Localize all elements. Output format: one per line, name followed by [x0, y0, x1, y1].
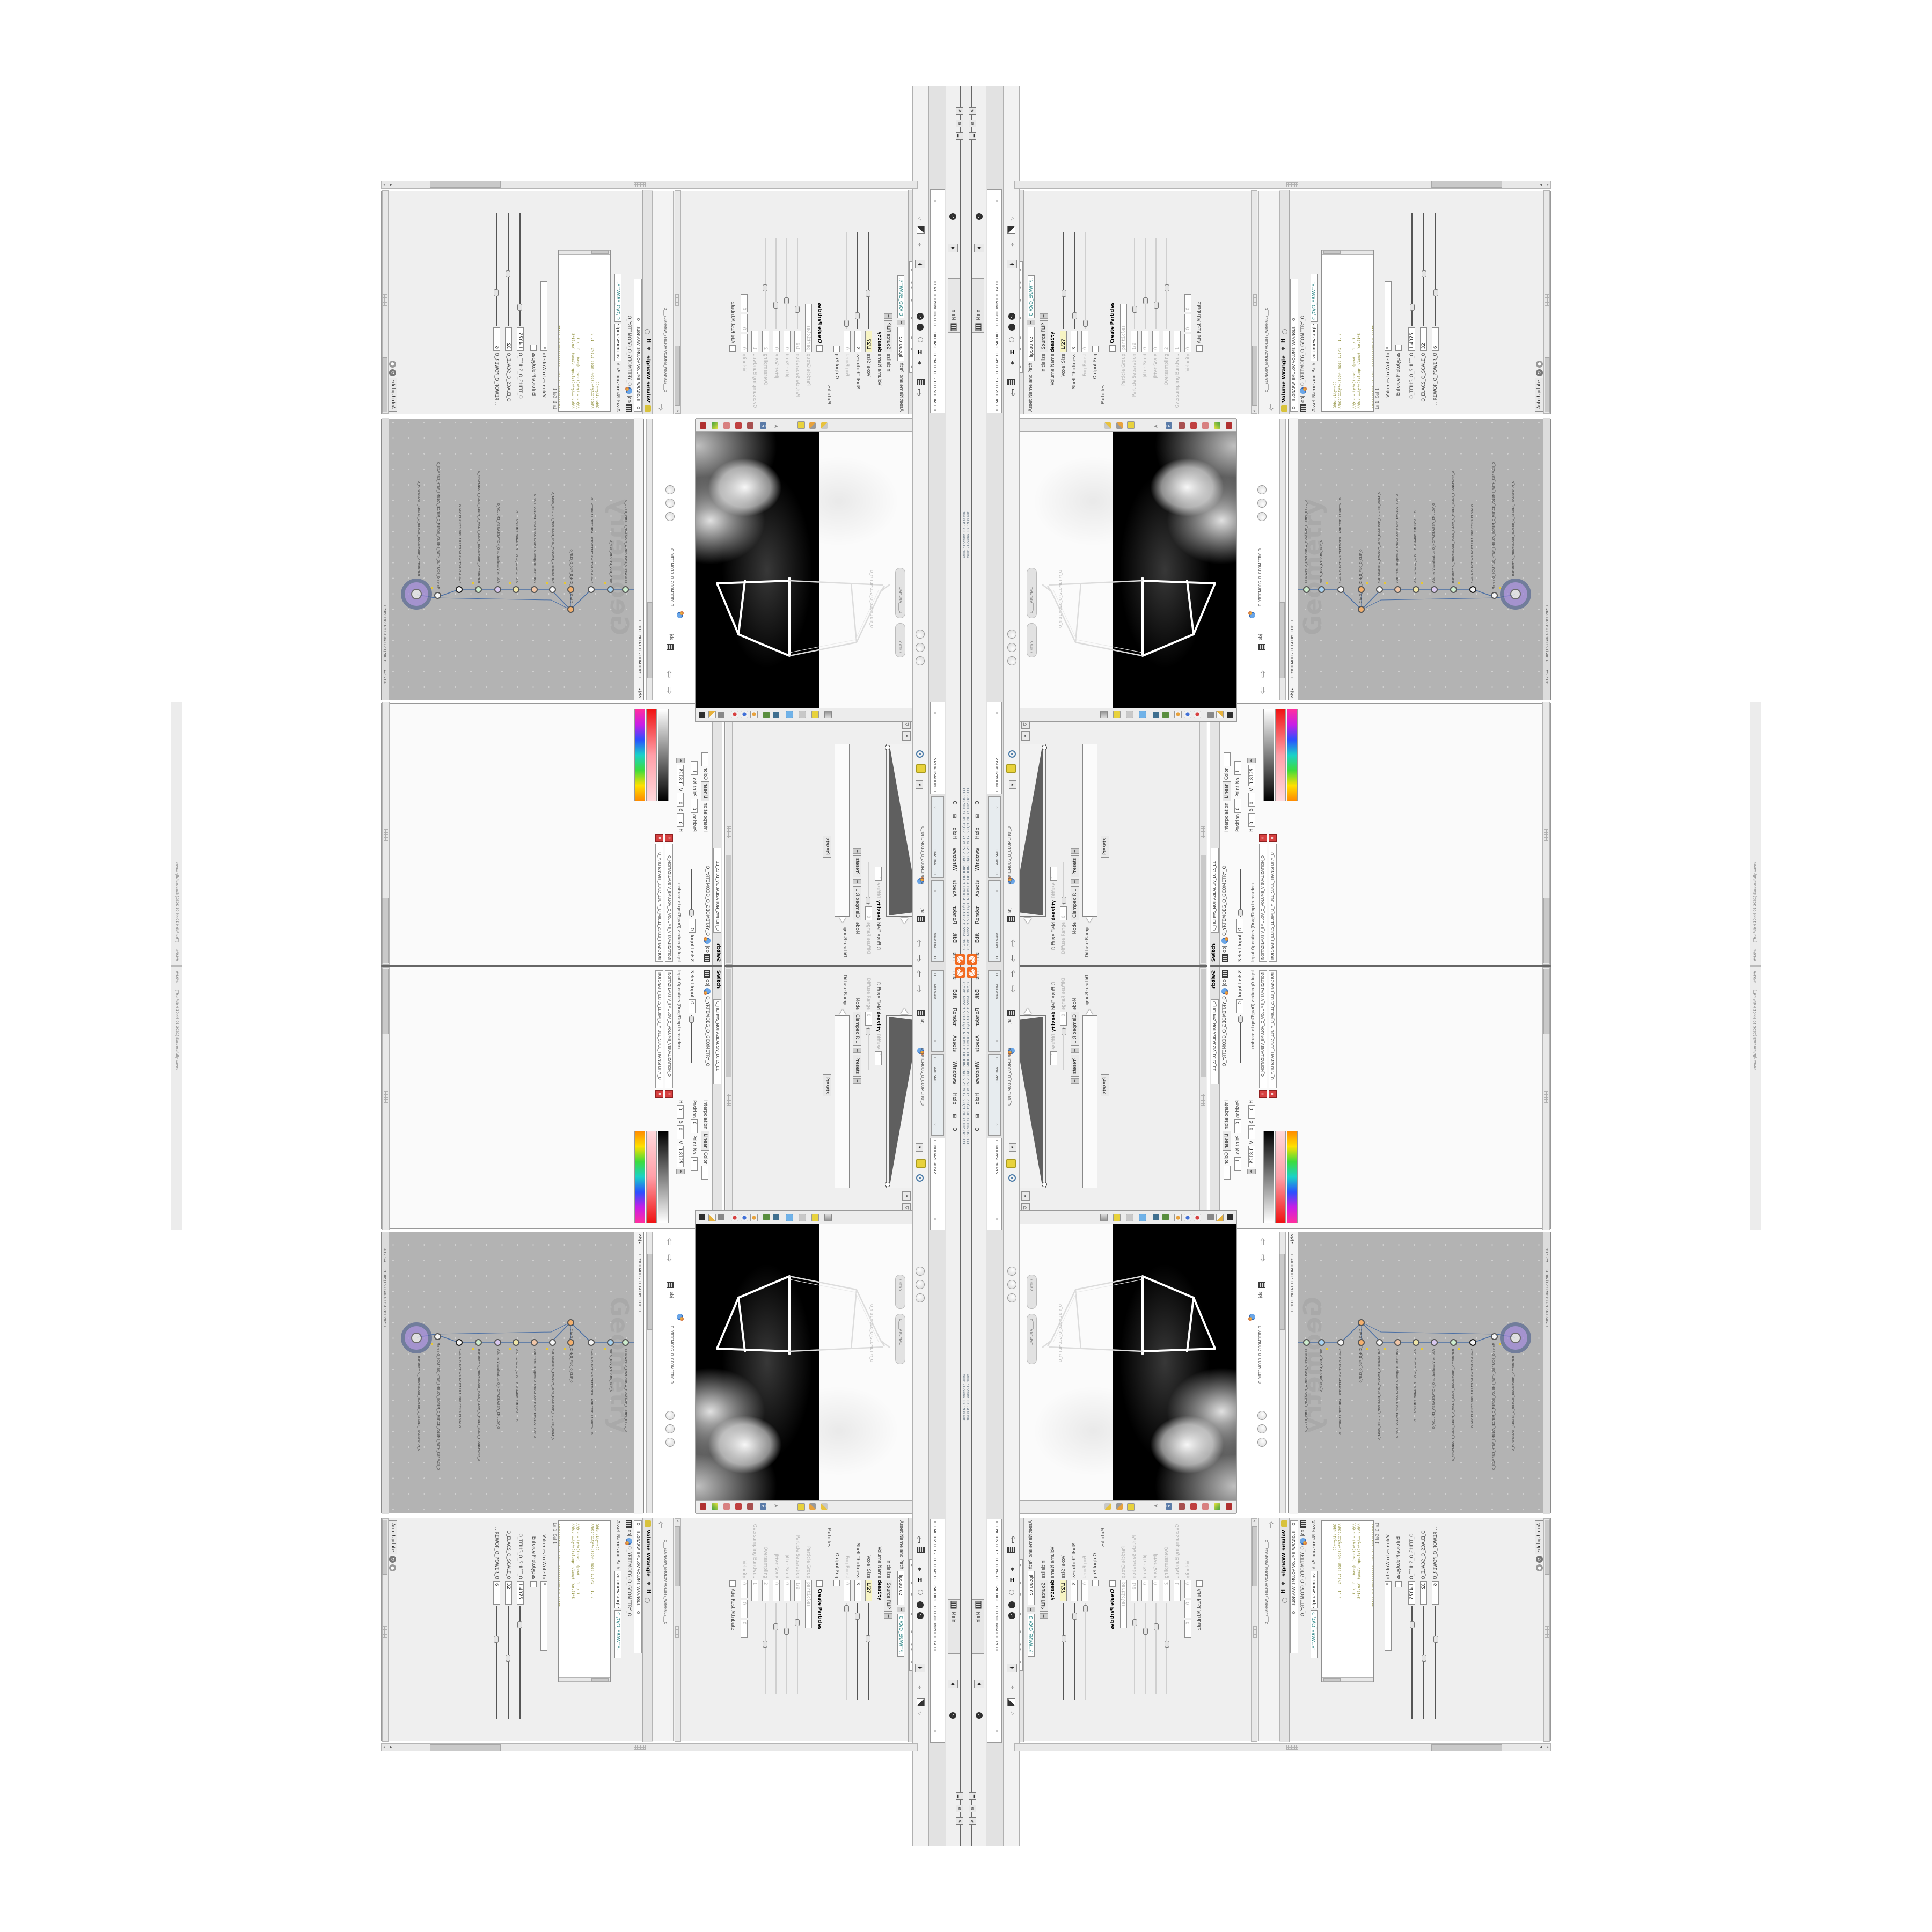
network-node[interactable]	[475, 586, 482, 593]
shell-thickness-slider[interactable]	[1074, 232, 1075, 329]
bottom-hscrollbar[interactable]: ◂ ▸	[381, 1743, 918, 1751]
gutter-path-label[interactable]: O_YRTEMOEG_O_GEOMETRY_O	[670, 1326, 674, 1384]
info-icon[interactable]: i	[1008, 324, 1015, 331]
camera-pill[interactable]: O____AREMAC	[895, 1314, 905, 1364]
breadcrumb-obj[interactable]: obj	[626, 396, 632, 402]
presets-spinner[interactable]: ◂▸	[853, 848, 861, 854]
particle-group-field[interactable]: particles	[805, 1580, 812, 1628]
pane-tab-volvis[interactable]: O_NOITAZILAUSIV...✕	[987, 1138, 1002, 1230]
velocity-z-field[interactable]: 0	[1184, 294, 1191, 312]
gear-icon[interactable]: ✱	[646, 347, 651, 350]
create-particles-checkbox[interactable]	[1109, 1580, 1116, 1587]
ramp-redpink[interactable]	[1275, 709, 1286, 801]
diffuse-ramp-widget[interactable]	[835, 1015, 850, 1188]
asset-spinner[interactable]: ◂▸	[1027, 1607, 1035, 1612]
select-input-field[interactable]: 0	[689, 919, 696, 933]
viewport-tool-icon[interactable]	[723, 1503, 730, 1510]
power-field[interactable]: 6	[1432, 327, 1439, 351]
viewport-tool-icon[interactable]	[1139, 711, 1146, 718]
network-node[interactable]	[494, 1339, 501, 1346]
switch-breadcrumb[interactable]: obj O_YRTEMOEG_O_GEOMETRY_O	[1221, 866, 1228, 962]
pane-up-arrow-icon[interactable]: ⇧	[1268, 401, 1275, 412]
search-icon[interactable]	[645, 329, 650, 334]
network-node[interactable]	[1337, 1339, 1344, 1346]
network-node[interactable]	[513, 586, 519, 593]
asset-node-field[interactable]: flipsource	[1028, 1571, 1035, 1605]
menu-assets[interactable]: Assets	[975, 880, 980, 897]
network-node[interactable]	[1358, 1319, 1365, 1326]
interpolation-select[interactable]: Linear	[1223, 1131, 1231, 1150]
camera-pill[interactable]: O____AREMAC	[1027, 1314, 1037, 1364]
wrangle-scrollbar[interactable]	[1543, 1518, 1550, 1742]
switch-breadcrumb[interactable]: obj O_YRTEMOEG_O_GEOMETRY_O	[704, 970, 711, 1066]
viewport-tool-icon[interactable]	[1194, 1214, 1201, 1221]
select-input-slider[interactable]	[1240, 1015, 1241, 1063]
voxel-size-slider[interactable]	[1063, 1603, 1064, 1700]
pane-down-arrow-icon[interactable]: ⇩	[1259, 668, 1267, 679]
particle-separation-slider[interactable]	[797, 1603, 799, 1694]
jitter-seed-slider[interactable]	[1145, 238, 1146, 329]
remove-input-2-button[interactable]: ×	[655, 834, 663, 842]
interpolation-select[interactable]: Linear	[701, 1131, 709, 1150]
diffuse-ramp-handle[interactable]	[839, 917, 846, 923]
menu-edit[interactable]: Edit	[975, 933, 980, 943]
oversampling-bandwidth-field[interactable]: 1	[1174, 1580, 1181, 1601]
pane-up-arrow-icon[interactable]: ⇧	[1009, 969, 1017, 980]
voxel-size-slider[interactable]	[868, 232, 869, 329]
view-tool-icon[interactable]	[665, 1424, 675, 1433]
viewport-tool-icon[interactable]	[712, 422, 718, 429]
viewport-tool-icon[interactable]	[1126, 1214, 1133, 1221]
display-toggle-icon[interactable]	[917, 226, 925, 234]
jitter-seed-slider[interactable]	[1145, 1603, 1146, 1694]
viewport-tool-icon[interactable]	[741, 711, 748, 718]
particle-separation-slider[interactable]	[1134, 238, 1135, 329]
network-node[interactable]	[1376, 1339, 1383, 1346]
menu-spin-button[interactable]: ◂▸	[974, 1680, 984, 1688]
menu-help[interactable]: Help	[952, 828, 957, 839]
voxel-size-slider[interactable]	[868, 1603, 869, 1700]
shift-field[interactable]: 1.4375	[517, 327, 524, 351]
flip-scrollbar[interactable]: ◂	[1251, 190, 1257, 414]
gear-icon[interactable]: ✱	[646, 1582, 651, 1585]
network-node[interactable]	[1469, 1339, 1476, 1346]
ramp-redpink[interactable]	[646, 709, 657, 801]
shift-slider[interactable]	[1411, 1606, 1413, 1719]
display-toggle-icon[interactable]	[917, 1698, 925, 1706]
desktop-grid-icon[interactable]: ⊞	[952, 1114, 957, 1118]
h-field[interactable]: 0	[1248, 1105, 1255, 1119]
viewport-tool-icon[interactable]	[1226, 422, 1232, 429]
volvis-scrollbar[interactable]	[726, 702, 733, 965]
oversampling-bandwidth-field[interactable]: 1	[751, 331, 758, 352]
plus-icon[interactable]: ✛	[1011, 241, 1014, 247]
voxel-size-slider[interactable]	[1063, 232, 1064, 329]
v-spinner[interactable]: ◂▸	[1247, 1169, 1256, 1174]
viewport-tool-icon[interactable]	[1174, 711, 1182, 718]
pane-tab-camera[interactable]: O____AREMAC...✕	[988, 796, 1001, 878]
select-input-field[interactable]: 0	[689, 999, 696, 1013]
menu-render[interactable]: Render	[975, 906, 980, 924]
plus-icon[interactable]: ✛	[1011, 1685, 1014, 1690]
gutter-obj-label[interactable]: obj	[669, 1292, 674, 1298]
viewport-tool-icon[interactable]	[747, 1503, 753, 1510]
sticky-note-icon[interactable]	[916, 764, 926, 773]
side-collapse-button[interactable]: ◂	[916, 1143, 923, 1152]
remove-input-1-button[interactable]: ×	[1259, 1090, 1267, 1098]
asset-path-field[interactable]: C:/O/O_ERAWTF...	[1311, 1610, 1318, 1658]
diffuse-presets-button[interactable]: Presets	[823, 836, 831, 858]
h-field[interactable]: 0	[677, 1105, 684, 1119]
viewport-tool-icon[interactable]: 7D	[1166, 1503, 1172, 1510]
create-particles-checkbox[interactable]	[1109, 345, 1116, 352]
shift-slider[interactable]	[1411, 213, 1413, 326]
pane-down-arrow-icon[interactable]: ⇩	[665, 1253, 673, 1264]
power-field[interactable]: 6	[493, 327, 500, 351]
ramp-redpink[interactable]	[646, 1131, 657, 1223]
mode2-select[interactable]: Clamped R...	[853, 1012, 861, 1046]
gutter-path-label[interactable]: O_YRTEMOEG_O_GEOMETRY_O	[1258, 548, 1262, 606]
breadcrumb-path[interactable]: O_YRTEMOEG_O_GEOMETRY_O	[1222, 996, 1227, 1066]
side-obj-label[interactable]: obj	[1007, 1019, 1012, 1024]
search-icon[interactable]	[1282, 1598, 1287, 1603]
menu-assets[interactable]: Assets	[952, 1035, 957, 1052]
pane-up-arrow-icon[interactable]: ⇧	[915, 952, 923, 963]
switch-tab[interactable]: O_HCTIWS_NOITAZILAUSIV_ECILS_EL	[713, 999, 721, 1084]
pane-down-arrow-icon[interactable]: ⇩	[1009, 984, 1017, 995]
pane-tab-volvis[interactable]: O_NOITAZILAUSIV...✕	[930, 1138, 945, 1230]
viewport-tool-icon[interactable]	[1184, 711, 1191, 718]
viewport-tool-icon[interactable]	[1162, 1214, 1169, 1220]
volumes-field[interactable]: *	[1385, 281, 1392, 351]
menu-assets[interactable]: Assets	[952, 880, 957, 897]
network-node[interactable]	[456, 586, 463, 593]
diffuse-range-field[interactable]: 0	[1060, 906, 1067, 920]
initialize-spinner[interactable]: ◂▸	[1040, 1613, 1048, 1619]
initialize-spinner[interactable]: ◂▸	[884, 313, 892, 319]
side-obj-label[interactable]: obj	[1007, 908, 1012, 913]
wrangle-breadcrumb[interactable]: obj O_YRTEMOEG_O_GEOMETRY_O	[626, 1520, 632, 1616]
viewport-tool-icon[interactable]	[1226, 1503, 1232, 1510]
pane-up-arrow-icon[interactable]: ⇧	[1259, 1237, 1267, 1248]
network-node[interactable]	[1413, 586, 1419, 593]
ramp-handle-end[interactable]	[1042, 1182, 1047, 1187]
pane-down-arrow-icon[interactable]: ⇩	[1009, 937, 1017, 948]
interpolation-select[interactable]: Linear	[1223, 781, 1231, 801]
view-icon[interactable]	[1007, 643, 1016, 652]
plus-icon[interactable]: ✛	[918, 1685, 921, 1690]
help-icon[interactable]: ?	[949, 213, 956, 220]
side-path-label[interactable]: O_YRTEMOEG_O_GEOMETRY_O	[1007, 1048, 1012, 1106]
view-tool-icon[interactable]	[1257, 1438, 1267, 1447]
fog-boost-slider[interactable]	[847, 1603, 848, 1700]
viewport-tool-icon[interactable]	[1184, 1214, 1191, 1221]
viewport-tool-icon[interactable]	[1127, 421, 1135, 429]
menu-windows[interactable]: Windows	[975, 1061, 980, 1084]
volumes-field[interactable]: *	[540, 1581, 547, 1651]
color-swatch[interactable]	[1224, 752, 1231, 766]
asset-path-field[interactable]: C:/O/O_ERAWTF...	[614, 274, 621, 322]
network-node[interactable]	[531, 586, 538, 593]
diffuse-range-value[interactable]: 1	[875, 867, 882, 881]
menu-edit[interactable]: Edit	[952, 989, 957, 999]
update-mode-select[interactable]: Auto Update	[389, 378, 397, 412]
selected-node-halo[interactable]	[1500, 579, 1531, 610]
vex-code-editor[interactable]: (@density*=((//@density*=((pow((mod(-1.)…	[558, 250, 611, 412]
point-no-field[interactable]: 1	[1234, 1157, 1241, 1171]
viewport-tool-icon[interactable]: 7D	[760, 1503, 766, 1510]
scale-field[interactable]: 32	[505, 1581, 512, 1605]
menu-windows[interactable]: Windows	[975, 848, 980, 870]
viewport-tool-icon[interactable]	[747, 422, 753, 429]
pane-tab-flip[interactable]: O_EMULOV_LEHS_ELCITRAP_TICILPMI_DIULF_O_…	[930, 189, 945, 413]
ramp-tri-left[interactable]	[1024, 918, 1031, 924]
diffuse-presets-button[interactable]: Presets	[823, 1074, 831, 1096]
sticky-note-icon[interactable]	[1006, 764, 1016, 773]
shift-slider[interactable]	[520, 1606, 521, 1719]
v-spinner[interactable]: ◂▸	[676, 1169, 685, 1174]
ramp-rainbow[interactable]	[1287, 1131, 1298, 1223]
network-node[interactable]	[622, 586, 629, 593]
flip-scrollbar[interactable]: ◂	[675, 1518, 681, 1742]
select-input-slider[interactable]	[692, 869, 693, 917]
viewport-tool-icon[interactable]	[708, 711, 716, 718]
fog-boost-field[interactable]: 0	[844, 331, 851, 352]
add-rest-checkbox[interactable]	[729, 345, 736, 352]
output-fog-checkbox[interactable]	[1092, 1580, 1099, 1586]
velocity-z-field[interactable]: 0	[741, 1620, 748, 1638]
network-node[interactable]	[588, 1339, 595, 1346]
viewport-tool-icon[interactable]	[731, 711, 738, 718]
switch-pane-scrollbar[interactable]	[382, 702, 390, 965]
viewport-tool-icon[interactable]	[1113, 711, 1121, 718]
flip-scrollbar[interactable]: ◂	[675, 190, 681, 414]
breadcrumb-path[interactable]: O_YRTEMOEG_O_GEOMETRY_O	[1300, 1546, 1306, 1616]
color-swatch[interactable]	[1224, 1166, 1231, 1180]
oversampling-bandwidth-field[interactable]: 1	[1174, 331, 1181, 352]
position-field[interactable]: 0	[691, 799, 698, 813]
menu-assets[interactable]: Assets	[975, 1035, 980, 1052]
viewport-tool-icon[interactable]	[1207, 1214, 1214, 1220]
diffuse-range-value[interactable]: 1	[875, 1051, 882, 1065]
menu-spin-button[interactable]: ◂▸	[948, 244, 958, 252]
jitter-scale-slider[interactable]	[776, 238, 777, 329]
close-button[interactable]: ✕	[956, 107, 963, 115]
enforce-checkbox[interactable]	[1395, 345, 1402, 351]
menu-extra[interactable]: O	[952, 1127, 957, 1131]
menu-render[interactable]: Render	[975, 1008, 980, 1026]
remove-input-1-button[interactable]: ×	[665, 1090, 673, 1098]
asset-path-field[interactable]: C:/O/O_ERAWTF...	[1028, 275, 1035, 318]
memory-icon[interactable]: ●	[1536, 1564, 1543, 1571]
viewport-tool-icon[interactable]	[797, 1503, 805, 1511]
viewport-tool-icon[interactable]	[811, 711, 819, 718]
viewport-render[interactable]: O_YRTEMOEG_O_GEOMETRY_O Ortho O____AREMA…	[1014, 1224, 1236, 1500]
presets-button[interactable]: Presets	[1071, 1055, 1079, 1077]
viewport-tool-icon[interactable]	[1179, 422, 1185, 429]
asset-path-field[interactable]: C:/O/O_ERAWTF...	[1311, 274, 1318, 322]
pane-up-arrow-icon[interactable]: ⇧	[915, 1535, 923, 1546]
viewport-tool-icon[interactable]	[718, 1214, 724, 1220]
asset-spinner[interactable]: ◂▸	[897, 320, 905, 325]
view-tool-icon[interactable]	[1257, 499, 1267, 508]
view-tool-icon[interactable]	[665, 512, 675, 521]
wrangle-tab[interactable]: O___ELGNARW_EMULOV VOLUME_WRANGLE___O	[1290, 279, 1298, 412]
v-spinner[interactable]: ◂▸	[676, 758, 685, 763]
viewport-tool-icon[interactable]	[786, 1214, 793, 1221]
viewport-tool-icon[interactable]	[750, 1214, 758, 1221]
memory-icon[interactable]: ●	[390, 361, 397, 368]
network-node[interactable]	[1450, 1339, 1457, 1346]
viewport-tool-icon[interactable]	[786, 711, 793, 718]
plus-icon[interactable]: ✛	[918, 241, 921, 247]
shell-thickness-field[interactable]: 3	[854, 1580, 861, 1601]
viewport-tool-icon[interactable]	[1174, 1214, 1182, 1221]
ramp-grayscale[interactable]	[658, 709, 669, 801]
asset-node-field[interactable]: volumewrangle	[1311, 324, 1318, 361]
presets-button[interactable]: Presets	[853, 855, 861, 877]
viewport-tool-icon[interactable]	[723, 422, 730, 429]
vex-code-editor[interactable]: (@density*=((//@density*=((pow((mod(-1.)…	[1321, 250, 1374, 412]
gear-icon[interactable]: ✱	[918, 1567, 921, 1572]
viewport-tool-icon[interactable]	[799, 711, 806, 718]
gutter-path-label[interactable]: O_YRTEMOEG_O_GEOMETRY_O	[1258, 1326, 1262, 1384]
help-icon[interactable]: ?	[917, 313, 924, 320]
pane-up-arrow-icon[interactable]: ⇧	[1009, 952, 1017, 963]
view-icon[interactable]	[1007, 630, 1016, 639]
asset-node-field[interactable]: volumewrangle	[1311, 1571, 1318, 1608]
ramp-grayscale[interactable]	[658, 1131, 669, 1223]
maximize-button[interactable]: ⧉	[969, 120, 976, 127]
side-spin-button[interactable]: ◂▸	[1007, 1664, 1017, 1672]
pane-tab-camera[interactable]: O____AREMAC...✕	[931, 1054, 944, 1136]
viewport-tool-icon[interactable]	[1153, 712, 1159, 718]
side-spin-button[interactable]: ◂▸	[1007, 260, 1017, 268]
pane-up-arrow-icon[interactable]: ⇧	[665, 684, 673, 695]
select-input-slider[interactable]	[1240, 869, 1241, 917]
particle-group-field[interactable]: particles	[805, 304, 812, 352]
remove-input-1-button[interactable]: ×	[1259, 834, 1267, 842]
v-field[interactable]: 1.8125	[677, 1146, 684, 1167]
view-icon[interactable]	[1007, 1267, 1016, 1276]
viewport-tool-icon[interactable]	[824, 711, 832, 718]
gutter-tab-text[interactable]: O___ELGNARW_EMULOV VOLUME_WRANGLE___O	[1264, 308, 1269, 392]
shell-thickness-slider[interactable]	[858, 1603, 859, 1700]
presets-button[interactable]: Presets	[853, 1055, 861, 1077]
search-icon[interactable]	[918, 1590, 923, 1595]
jitter-scale-slider[interactable]	[1155, 1603, 1157, 1694]
menu-extra[interactable]: O	[952, 801, 957, 804]
view-icon[interactable]	[1007, 1280, 1016, 1289]
viewport-tool-icon[interactable]	[799, 1214, 806, 1221]
input-op-1[interactable]: NOITAZILAUSIV_EMULOV_O_VOLUME_VISUALIZAT…	[1259, 970, 1267, 1098]
breadcrumb-obj[interactable]: obj	[1222, 979, 1227, 986]
ramp-tri-left[interactable]	[901, 918, 908, 924]
diffuse-range-slider[interactable]	[1063, 862, 1064, 905]
switch-breadcrumb[interactable]: obj O_YRTEMOEG_O_GEOMETRY_O	[1221, 970, 1228, 1066]
viewport-tool-icon[interactable]	[809, 1503, 816, 1510]
input-op-1[interactable]: NOITAZILAUSIV_EMULOV_O_VOLUME_VISUALIZAT…	[665, 834, 673, 962]
select-input-slider[interactable]	[692, 1015, 693, 1063]
diffuse-ramp-handle[interactable]	[1086, 1009, 1093, 1015]
power-slider[interactable]	[496, 1606, 497, 1719]
pane-tab-camera[interactable]: O____AREMAC...✕	[988, 1054, 1001, 1136]
gutter-tab-text[interactable]: O___ELGNARW_EMULOV VOLUME_WRANGLE___O	[663, 1540, 668, 1624]
jitter-seed-slider[interactable]	[787, 1603, 788, 1694]
view-tool-icon[interactable]	[1257, 1424, 1267, 1433]
breadcrumb-path[interactable]: O_YRTEMOEG_O_GEOMETRY_O	[705, 866, 710, 936]
switch-tab[interactable]: O_HCTIWS_NOITAZILAUSIV_ECILS_EL	[713, 848, 721, 933]
help-icon[interactable]: ?	[917, 1612, 924, 1619]
presets-spinner[interactable]: ◂▸	[1071, 848, 1079, 854]
fog-boost-field[interactable]: 0	[844, 1580, 851, 1601]
select-input-field[interactable]: 0	[1236, 999, 1243, 1013]
viewport-tool-icon[interactable]	[824, 1214, 832, 1221]
help-icon[interactable]: ?	[976, 1712, 983, 1719]
velocity-y-field[interactable]: 0	[1184, 1600, 1191, 1618]
velocity-x-field[interactable]: 0	[741, 334, 748, 352]
mode2-spinner[interactable]: ◂▸	[853, 1048, 861, 1053]
particle-separation-field[interactable]: 1/9	[1131, 1580, 1138, 1601]
oversampling-field[interactable]: 2	[762, 331, 769, 352]
ramp-handle-end[interactable]	[1042, 745, 1047, 750]
power-slider[interactable]	[496, 213, 497, 326]
mode2-select[interactable]: Clamped R...	[1071, 886, 1079, 920]
volvis-scrollbar[interactable]	[726, 967, 733, 1230]
scale-field[interactable]: 32	[1420, 327, 1427, 351]
power-field[interactable]: 6	[1432, 1581, 1439, 1605]
diffuse-field-value[interactable]: density	[1051, 900, 1057, 920]
network-node[interactable]	[1358, 606, 1365, 613]
diffuse-field-value[interactable]: density	[1051, 1012, 1057, 1032]
menu-edit[interactable]: Edit	[952, 933, 957, 943]
wrangle-tab[interactable]: O___ELGNARW_EMULOV VOLUME_WRANGLE___O	[1290, 1520, 1298, 1653]
minimize-button[interactable]: ▂	[969, 1792, 976, 1800]
info-icon[interactable]: i	[917, 324, 924, 331]
breadcrumb-obj[interactable]: obj	[705, 946, 710, 953]
input-op-1[interactable]: NOITAZILAUSIV_EMULOV_O_VOLUME_VISUALIZAT…	[665, 970, 673, 1098]
bottom-hscrollbar[interactable]: ◂ ▸	[1014, 1743, 1551, 1751]
velocity-x-field[interactable]: 0	[741, 1580, 748, 1598]
diffuse-range-slider[interactable]	[1063, 1027, 1064, 1070]
memory-icon[interactable]: ●	[1536, 361, 1543, 368]
gutter-obj-label[interactable]: obj	[1258, 1292, 1263, 1298]
diffuse-field-value[interactable]: density	[876, 900, 881, 920]
shift-field[interactable]: 1.4375	[1408, 327, 1415, 351]
pane-up-arrow-icon[interactable]: ⇧	[1268, 1520, 1275, 1531]
diffuse-ramp-widget[interactable]	[1082, 744, 1097, 917]
viewport-tool-icon[interactable]	[731, 1214, 738, 1221]
network-node[interactable]	[1303, 1339, 1310, 1346]
input-op-2[interactable]: ROFSNART_ECILS_ELDIM_O_MIDLE_SLICE_TRANS…	[1269, 834, 1277, 962]
asset-path-field[interactable]: C:/O/O_ERAWTF...	[1028, 1614, 1035, 1657]
menu-help[interactable]: Help	[952, 1093, 957, 1105]
network-node[interactable]	[1450, 586, 1457, 593]
viewport-tool-icon[interactable]	[821, 422, 828, 429]
network-node[interactable]	[549, 1339, 556, 1346]
asset-node-field[interactable]: volumewrangle	[614, 1571, 621, 1608]
breadcrumb-path[interactable]: O_YRTEMOEG_O_GEOMETRY_O	[1222, 866, 1227, 936]
gutter-scrollbar[interactable]	[1279, 419, 1286, 700]
diffuse-range-field[interactable]: 0	[865, 1012, 872, 1026]
target-icon[interactable]	[916, 1174, 924, 1182]
viewport-tool-icon[interactable]	[1190, 1503, 1197, 1510]
side-path-label[interactable]: O_YRTEMOEG_O_GEOMETRY_O	[1007, 826, 1012, 884]
diffuse-range-slider[interactable]	[868, 1027, 869, 1070]
network-node[interactable]	[1491, 592, 1498, 599]
viewport-tool-icon[interactable]	[1216, 1214, 1224, 1221]
wrangle-tab[interactable]: O___ELGNARW_EMULOV VOLUME_WRANGLE___O	[634, 279, 642, 412]
